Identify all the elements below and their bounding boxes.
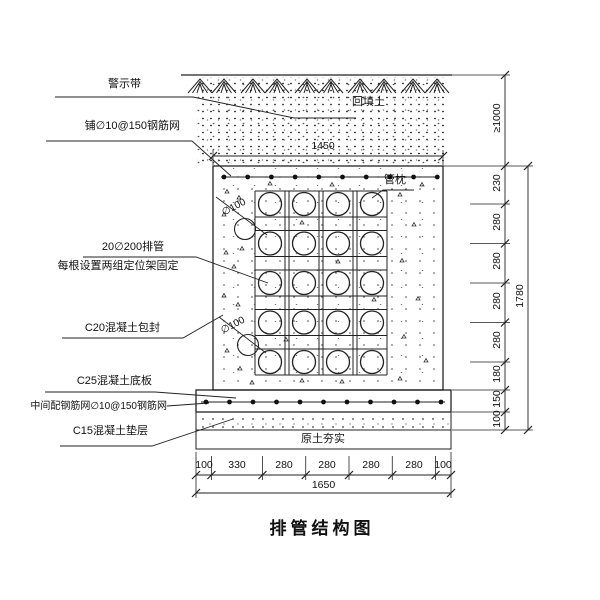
label-pipes-line1: 20∅200排管	[70, 241, 196, 254]
dim-right-cover: ≥1000	[491, 96, 503, 140]
leader-base-slab	[45, 392, 236, 398]
label-backfill: 回填土	[352, 96, 385, 109]
pipe-bank-structure-drawing: 警示带 铺∅10@150钢筋网 20∅200排管 每根设置两组定位架固定 C20…	[0, 0, 600, 600]
drawing-title: 排管结构图	[152, 514, 492, 539]
label-slab-mesh: 中间配钢筋网∅10@150钢筋网	[25, 400, 167, 413]
dim-top-width: 1450	[196, 140, 450, 152]
detail-circle-dia100-upper	[235, 219, 256, 240]
dim-bottom-seg: 330	[219, 459, 255, 471]
dim-bottom-seg: 100	[186, 459, 222, 471]
cushion-outline	[196, 412, 451, 430]
dim-bottom-seg: 280	[309, 459, 345, 471]
leader-warning-tape	[55, 97, 356, 118]
label-top-mesh: 铺∅10@150钢筋网	[40, 120, 180, 133]
label-cushion: C15混凝土垫层	[48, 425, 148, 438]
dim-right-total: 1780	[514, 274, 526, 318]
label-base-slab: C25混凝土底板	[40, 375, 152, 388]
dim-right-seg: 280	[491, 279, 503, 323]
leader-slab-mesh	[167, 403, 209, 406]
dim-right-seg: 100	[491, 397, 503, 441]
label-encasement: C20混凝土包封	[56, 322, 160, 335]
dim-bottom-seg: 100	[425, 459, 461, 471]
dim-bottom-total: 1650	[196, 479, 451, 491]
dim-bottom-seg: 280	[266, 459, 302, 471]
dim-right-seg: 280	[491, 200, 503, 244]
label-compacted-soil: 原土夯实	[196, 433, 450, 446]
dim-right-seg: 230	[491, 161, 503, 205]
dim-right-seg: 280	[491, 239, 503, 283]
dim-bottom-seg: 280	[353, 459, 389, 471]
label-warning-tape: 警示带	[55, 78, 141, 91]
label-pipes-line2: 每根设置两组定位架固定	[40, 260, 196, 273]
label-pipe-pillow: 管枕	[384, 174, 406, 187]
